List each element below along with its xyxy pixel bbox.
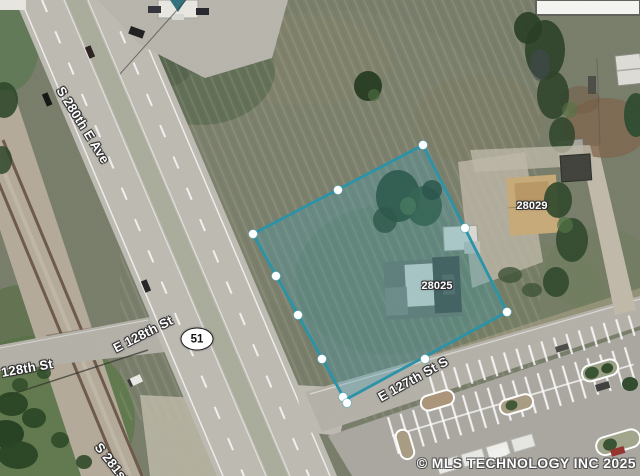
vertex-handle[interactable] <box>503 308 512 317</box>
highway-51-shield: 51 <box>181 328 214 351</box>
parcel-label-28029: 28029 <box>516 200 547 212</box>
vertex-handle[interactable] <box>334 186 343 195</box>
vertex-handle[interactable] <box>272 272 281 281</box>
parcel-label-28025: 28025 <box>421 280 452 292</box>
vertex-handle[interactable] <box>419 141 428 150</box>
vertex-handle[interactable] <box>343 399 352 408</box>
vertex-handle[interactable] <box>461 224 470 233</box>
mls-watermark: © MLS TECHNOLOGY INC 2025 <box>417 455 636 471</box>
vertex-handle[interactable] <box>249 230 258 239</box>
vertex-handle[interactable] <box>318 355 327 364</box>
vertex-handle[interactable] <box>294 311 303 320</box>
map-imagery <box>0 0 640 476</box>
highway-route-number: 51 <box>191 333 204 345</box>
satellite-map[interactable]: S 280th E Ave E 128th St 128th St S 281s… <box>0 0 640 476</box>
